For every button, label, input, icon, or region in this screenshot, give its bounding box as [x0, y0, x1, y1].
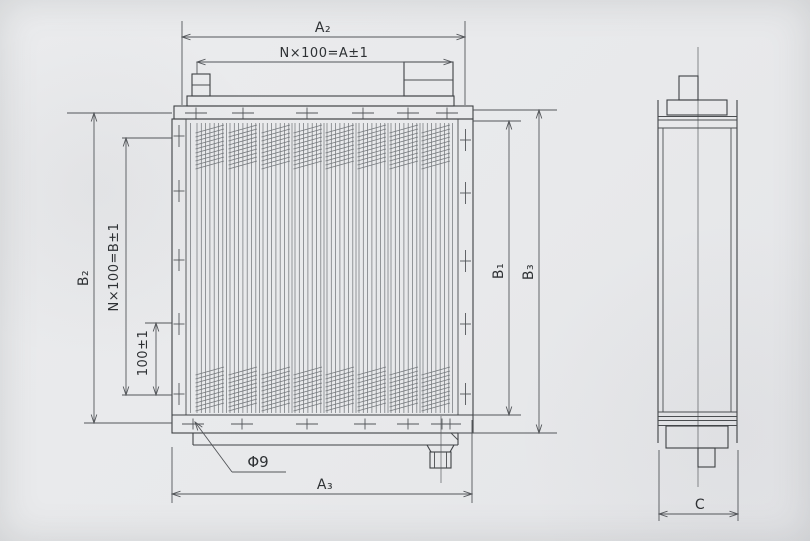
- dim-n100a-label: N×100=A±1: [280, 46, 369, 61]
- dim-c-label: C: [695, 497, 705, 513]
- dimension-n100a: N×100=A±1: [197, 46, 452, 74]
- drawing-sheet: A₂ N×100=A±1 B₂ N×100=B±1 100±1: [0, 0, 810, 541]
- dimension-100: 100±1: [136, 323, 172, 395]
- front-view: A₂ N×100=A±1 B₂ N×100=B±1 100±1: [67, 20, 557, 503]
- side-view: C: [658, 47, 738, 521]
- top-tube-plate: [174, 106, 473, 119]
- dim-a3-label: A₃: [317, 477, 333, 493]
- left-frame-hole-marks: [174, 125, 185, 405]
- hole-callout-label: Φ9: [247, 453, 268, 471]
- side-bottom-pipe-stub: [698, 448, 715, 467]
- dim-a2-label: A₂: [315, 20, 331, 36]
- engineering-drawing: A₂ N×100=A±1 B₂ N×100=B±1 100±1: [0, 0, 810, 541]
- right-frame-hole-marks: [460, 129, 471, 405]
- side-bottom-cap: [666, 426, 728, 448]
- finned-tube-bundle: [191, 123, 453, 413]
- bottom-plate: [193, 433, 458, 445]
- dim-b2-label: B₂: [76, 270, 92, 286]
- dim-b3-label: B₃: [521, 264, 537, 280]
- dim-b1-label: B₁: [491, 263, 507, 279]
- top-left-pipe-stub: [192, 74, 210, 96]
- side-top-header-bands: [658, 117, 737, 129]
- dimension-b1: B₁: [473, 121, 521, 415]
- hole-callout-phi9: Φ9: [195, 422, 286, 472]
- side-top-cap: [667, 100, 727, 115]
- side-bottom-header-bands: [658, 412, 737, 426]
- top-plate-upper-layer: [187, 96, 454, 106]
- dim-n100b-label: N×100=B±1: [107, 223, 122, 312]
- bottom-header-hole-marks: [182, 419, 461, 430]
- core-body: [172, 119, 473, 433]
- top-plate-hole-marks: [185, 108, 458, 119]
- top-right-header-box: [404, 62, 453, 96]
- side-top-pipe-stub: [679, 76, 698, 100]
- dim-100-label: 100±1: [136, 330, 151, 376]
